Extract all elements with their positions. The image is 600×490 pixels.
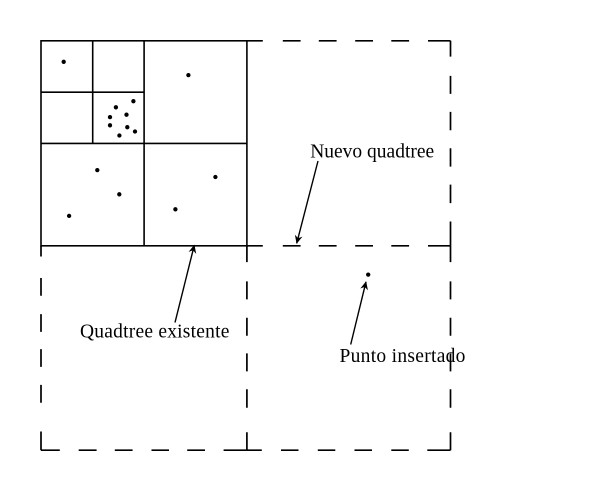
svg-text:Quadtree existente: Quadtree existente (80, 322, 230, 343)
svg-text:Punto insertado: Punto insertado (340, 346, 466, 367)
svg-text:Nuevo quadtree: Nuevo quadtree (310, 142, 434, 163)
